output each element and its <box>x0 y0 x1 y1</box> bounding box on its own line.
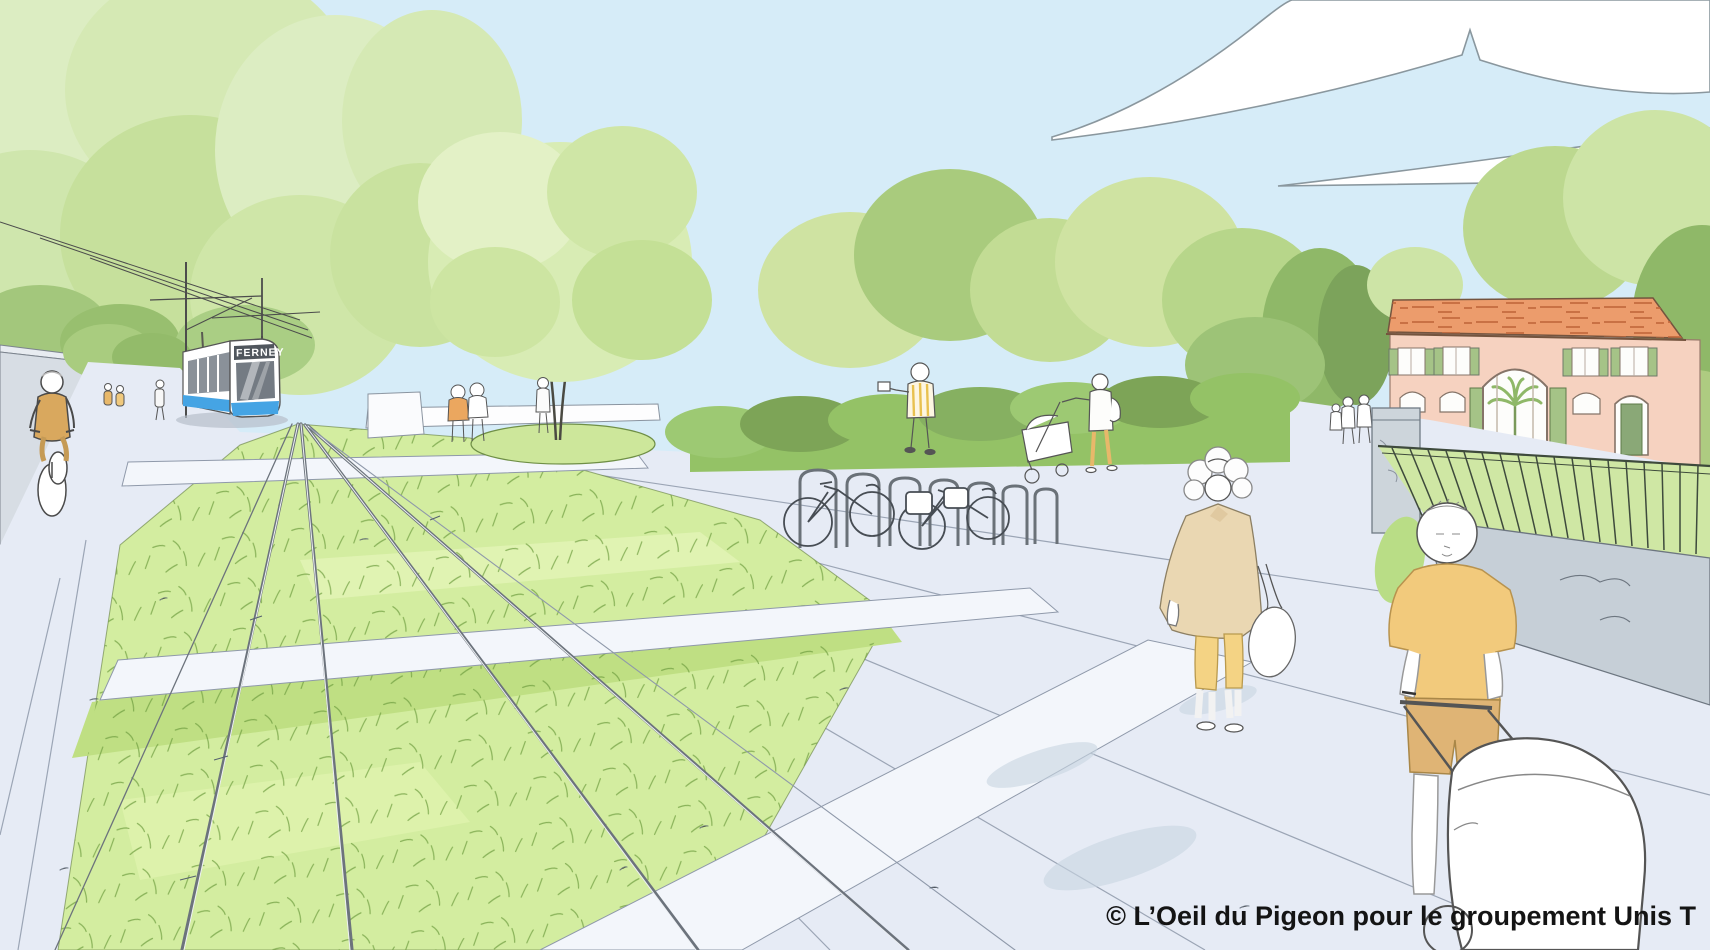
building-door <box>1615 396 1648 455</box>
image-credit-caption: © L’Oeil du Pigeon pour le groupement Un… <box>1106 901 1696 932</box>
tram-front-stripe <box>231 401 279 416</box>
tram-destination-text: FERNEY <box>236 346 285 359</box>
tree-planter <box>471 424 655 464</box>
tree-canopy <box>418 126 712 382</box>
bench-block <box>368 392 424 438</box>
tram: FERNEY <box>176 339 288 428</box>
illustration-canvas: FERNEY <box>0 0 1710 950</box>
